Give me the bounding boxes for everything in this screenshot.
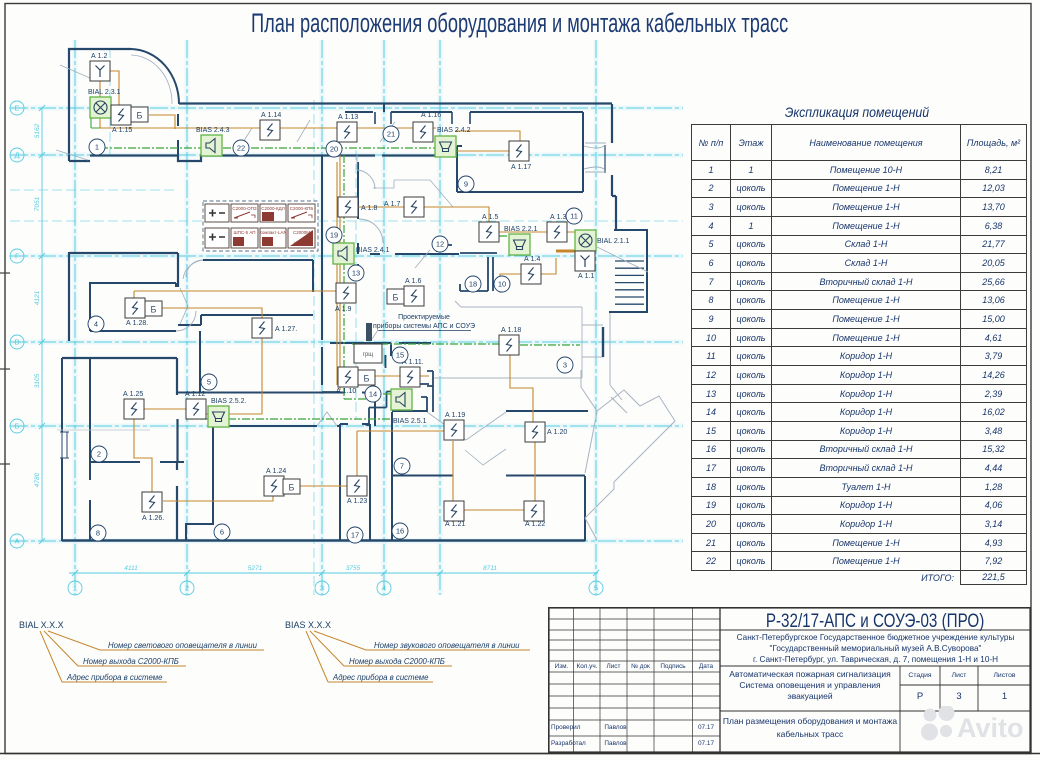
svg-text:4: 4	[94, 320, 98, 329]
svg-text:1: 1	[95, 143, 99, 152]
svg-text:А 1.14: А 1.14	[261, 112, 281, 119]
svg-text:А 1.23: А 1.23	[347, 498, 367, 505]
svg-text:7051: 7051	[34, 196, 41, 211]
svg-text:А 1.21: А 1.21	[445, 521, 465, 528]
svg-text:BIAS 2.2.1: BIAS 2.2.1	[504, 226, 538, 233]
svg-text:14: 14	[369, 390, 377, 399]
svg-text:4121: 4121	[34, 290, 41, 305]
svg-text:5: 5	[207, 378, 211, 387]
svg-text:ИП: ИП	[294, 240, 300, 245]
svg-text:7: 7	[400, 462, 404, 471]
svg-text:А 1.4: А 1.4	[524, 256, 540, 263]
svg-text:А: А	[14, 537, 19, 546]
svg-text:А 1.10: А 1.10	[336, 388, 356, 395]
svg-text:BIAL X.X.X: BIAL X.X.X	[19, 620, 64, 630]
svg-text:2: 2	[97, 450, 101, 459]
svg-text:6: 6	[220, 528, 224, 537]
svg-text:22: 22	[237, 144, 245, 153]
svg-text:А 1.15: А 1.15	[112, 127, 132, 134]
svg-text:Номер светового оповещателя в: Номер светового оповещателя в линии	[108, 641, 258, 650]
svg-text:Д: Д	[14, 151, 19, 160]
svg-text:А 1.26.: А 1.26.	[142, 515, 164, 522]
svg-text:А 1.28.: А 1.28.	[126, 320, 148, 327]
svg-text:5271: 5271	[248, 565, 263, 572]
svg-text:А 1.5: А 1.5	[482, 214, 498, 221]
svg-text:А 1.24: А 1.24	[266, 468, 286, 475]
svg-text:21: 21	[387, 130, 395, 139]
svg-text:А 1.17: А 1.17	[511, 164, 531, 171]
svg-text:1: 1	[73, 584, 77, 593]
svg-text:В: В	[14, 338, 19, 347]
svg-text:BIAS 2.5.1: BIAS 2.5.1	[393, 418, 427, 425]
svg-text:18: 18	[469, 280, 477, 289]
svg-text:А 1.27.: А 1.27.	[275, 326, 297, 333]
svg-text:А 1.3: А 1.3	[550, 214, 566, 221]
svg-text:4780: 4780	[34, 472, 41, 487]
svg-text:3755: 3755	[346, 565, 361, 572]
svg-text:С2000-КПБ: С2000-КПБ	[290, 206, 314, 211]
svg-text:А 1.1: А 1.1	[578, 273, 594, 280]
svg-text:А 1.6: А 1.6	[405, 278, 421, 285]
svg-text:грщ: грщ	[363, 352, 374, 358]
svg-text:Г: Г	[15, 252, 19, 261]
svg-text:BIAS 2.4.3: BIAS 2.4.3	[196, 127, 230, 134]
svg-text:С2000-ОПЗ: С2000-ОПЗ	[232, 206, 256, 211]
svg-text:5162: 5162	[34, 123, 41, 138]
svg-text:BIAS 2.4.2: BIAS 2.4.2	[437, 127, 471, 134]
svg-text:А 1.2: А 1.2	[91, 53, 107, 60]
svg-text:10: 10	[498, 280, 506, 289]
svg-text:11: 11	[570, 212, 578, 221]
svg-text:8: 8	[96, 529, 100, 538]
svg-text:А 1.25: А 1.25	[123, 391, 143, 398]
svg-text:20: 20	[330, 145, 338, 154]
svg-text:А 1.19: А 1.19	[445, 412, 465, 419]
svg-text:А 1.16: А 1.16	[421, 112, 441, 119]
svg-text:8711: 8711	[483, 565, 497, 572]
svg-text:BIAL 2.3.1: BIAL 2.3.1	[88, 89, 121, 96]
svg-text:2: 2	[185, 584, 189, 593]
svg-text:Номер выхода С2000-КПБ: Номер выхода С2000-КПБ	[349, 657, 445, 666]
svg-text:3105: 3105	[34, 373, 41, 388]
svg-text:Avito: Avito	[957, 713, 1024, 743]
svg-text:13: 13	[352, 269, 360, 278]
svg-text:19: 19	[330, 231, 338, 240]
svg-text:А 1.13: А 1.13	[338, 114, 358, 121]
svg-text:А 1.7: А 1.7	[384, 201, 400, 208]
svg-text:9: 9	[464, 180, 468, 189]
svg-text:BIAL 2.1.1: BIAL 2.1.1	[597, 238, 630, 245]
svg-text:BIAS 2.4.1: BIAS 2.4.1	[356, 247, 390, 254]
svg-text:Номер звукового оповещателя в: Номер звукового оповещателя в линии	[374, 641, 520, 650]
svg-text:Е: Е	[14, 104, 19, 113]
svg-text:12: 12	[436, 240, 444, 249]
svg-text:17: 17	[351, 531, 359, 540]
svg-text:Компакт-LAN: Компакт-LAN	[259, 230, 287, 235]
svg-text:С2000-КДЛ: С2000-КДЛ	[261, 206, 284, 211]
svg-text:А 1.8: А 1.8	[361, 205, 377, 212]
svg-text:BIAS 2.5.2.: BIAS 2.5.2.	[211, 398, 246, 405]
svg-text:4111: 4111	[124, 565, 138, 572]
svg-text:Номер выхода С2000-КПБ: Номер выхода С2000-КПБ	[83, 657, 179, 666]
svg-text:Адрес прибора в системе: Адрес прибора в системе	[66, 673, 163, 682]
svg-text:3: 3	[563, 361, 567, 370]
svg-text:Проектируемые: Проектируемые	[398, 314, 450, 321]
svg-text:приборы системы АПС и СОУЭ: приборы системы АПС и СОУЭ	[373, 322, 475, 330]
svg-text:BIAS X.X.X: BIAS X.X.X	[285, 620, 331, 630]
svg-text:Б: Б	[15, 422, 20, 431]
svg-text:А 1.9: А 1.9	[335, 306, 351, 313]
svg-text:А 1.20: А 1.20	[547, 429, 567, 436]
svg-text:16: 16	[396, 527, 404, 536]
svg-text:А 1.22: А 1.22	[525, 521, 545, 528]
svg-text:15: 15	[396, 351, 404, 360]
svg-text:ШПС-5 АП: ШПС-5 АП	[233, 230, 255, 235]
svg-text:А 1.12: А 1.12	[185, 391, 205, 398]
svg-text:Адрес прибора в системе: Адрес прибора в системе	[332, 673, 429, 682]
svg-text:4: 4	[382, 584, 386, 593]
svg-text:А 1.18: А 1.18	[501, 327, 521, 334]
svg-text:5: 5	[594, 584, 598, 593]
svg-text:3: 3	[320, 584, 324, 593]
